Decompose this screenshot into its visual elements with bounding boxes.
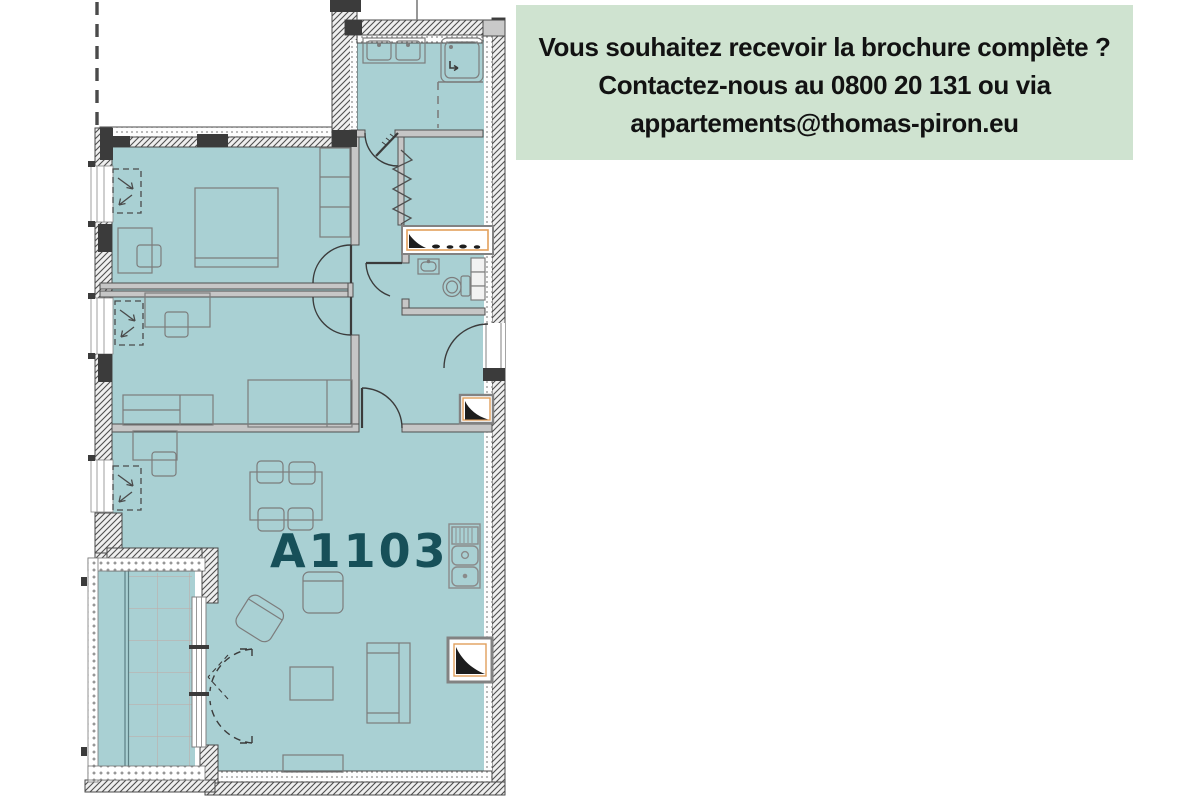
shaft-hall-top: [402, 226, 493, 254]
floor-areas: [97, 40, 484, 773]
banner-line-2: Contactez-nous au 0800 20 131 ou via: [516, 66, 1133, 104]
window-living: [91, 460, 113, 512]
contact-email: appartements@thomas-piron.eu: [516, 104, 1133, 142]
page: A1103 Vous souhaitez recevoir la brochur…: [0, 0, 1200, 800]
apartment-label: A1103: [270, 524, 460, 578]
balcony-glass-door: [189, 597, 209, 747]
contact-banner: Vous souhaitez recevoir la brochure comp…: [516, 5, 1133, 160]
entrance-door-opening: [483, 323, 505, 368]
window-bedroom2: [91, 298, 113, 354]
shaft-kitchen: [448, 638, 492, 682]
banner-line-1: Vous souhaitez recevoir la brochure comp…: [516, 28, 1133, 66]
balcony-tiles: [129, 573, 192, 766]
shaft-hall-bottom: [460, 395, 493, 423]
window-bedroom1: [91, 166, 113, 222]
